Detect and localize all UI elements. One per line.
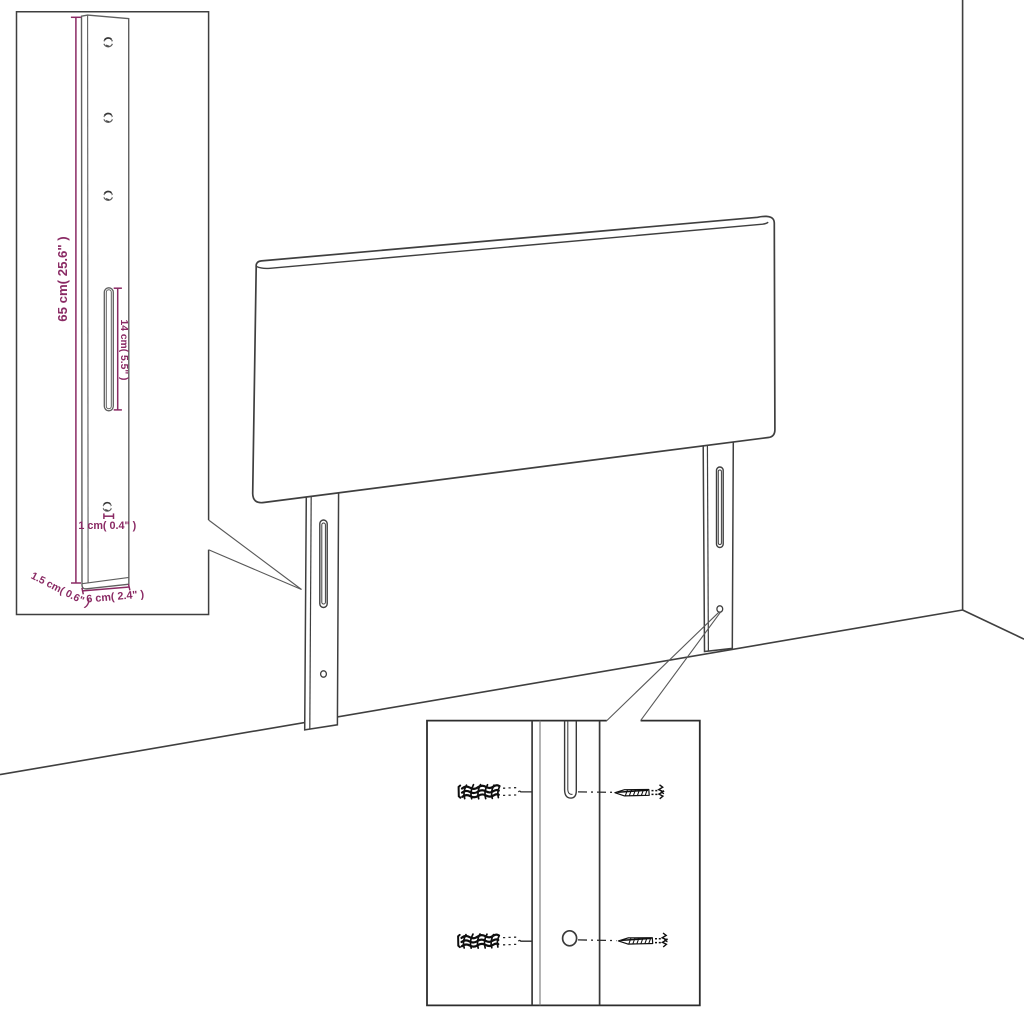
svg-text:65 cm( 25.6" ): 65 cm( 25.6" ): [55, 236, 70, 321]
svg-text:1 cm( 0.4" ): 1 cm( 0.4" ): [78, 520, 136, 532]
svg-text:14 cm( 5.5" ): 14 cm( 5.5" ): [118, 320, 129, 381]
